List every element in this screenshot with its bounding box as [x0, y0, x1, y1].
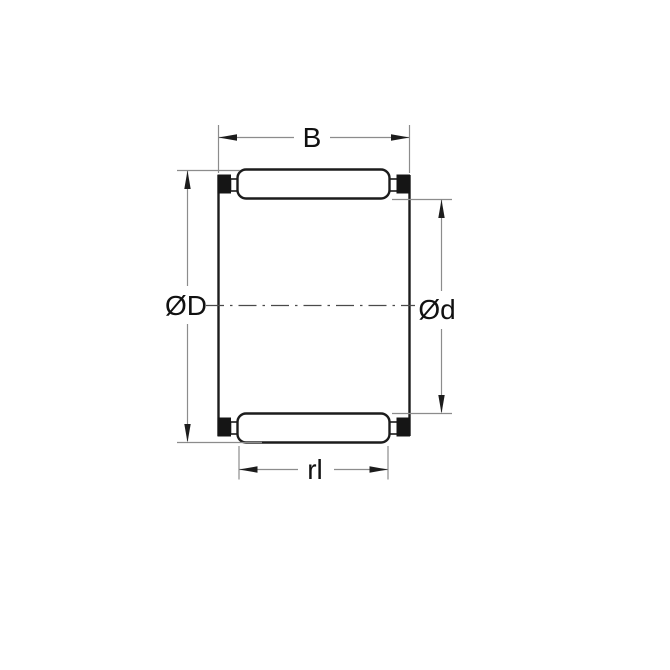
dimension-width-b: B [219, 122, 410, 173]
cage-corner-bottom-left [218, 418, 232, 437]
od-arrow-up-icon [184, 171, 190, 190]
roller-end-notches [231, 179, 398, 434]
b-dimension-label: B [303, 122, 322, 153]
bottom-roller [238, 414, 390, 443]
dimension-roller-length: rl [239, 446, 388, 485]
cage-corner-top-left [218, 175, 232, 194]
id-arrow-up-icon [438, 200, 444, 219]
rl-arrow-left-icon [239, 466, 258, 472]
b-arrow-right-icon [391, 134, 410, 140]
rl-arrow-right-icon [370, 466, 389, 472]
dimension-outer-diameter: ØD [165, 171, 262, 443]
cage-corner-top-right [397, 175, 411, 194]
od-dimension-label: ØD [165, 290, 207, 321]
b-arrow-left-icon [219, 134, 238, 140]
dimension-inner-diameter: Ød [392, 200, 456, 414]
top-roller [238, 170, 390, 199]
cage-corner-bottom-right [397, 418, 411, 437]
od-arrow-down-icon [184, 424, 190, 443]
id-dimension-label: Ød [418, 294, 455, 325]
id-arrow-down-icon [438, 395, 444, 414]
bearing-diagram: B ØD Ød [0, 0, 670, 670]
drawing-canvas: B ØD Ød [0, 0, 670, 670]
rl-dimension-label: rl [307, 454, 323, 485]
